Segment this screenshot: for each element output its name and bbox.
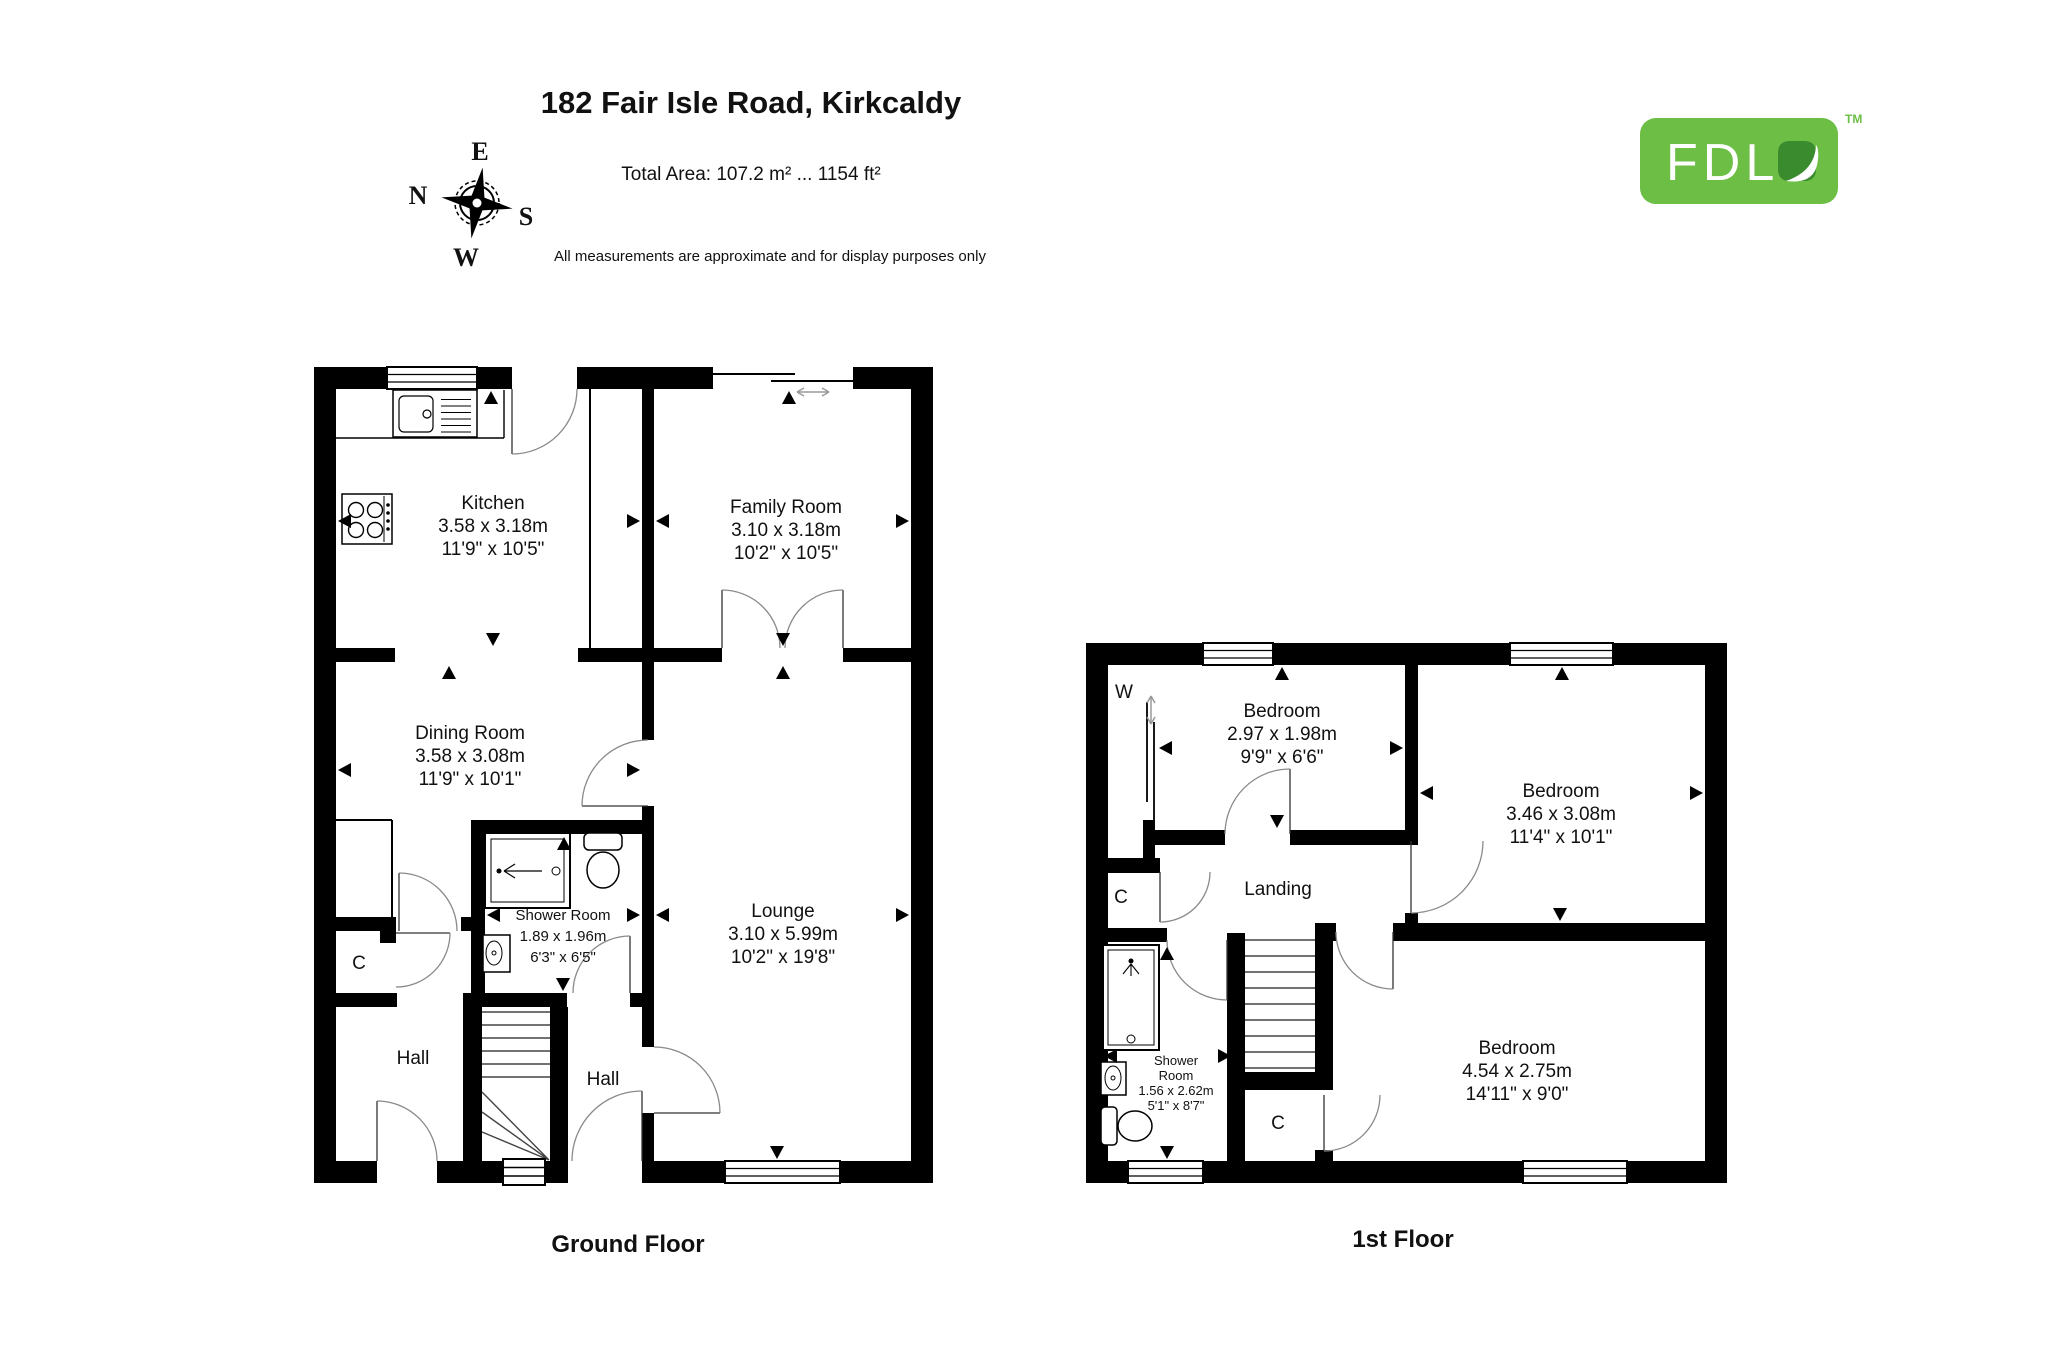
room-label-landing: Landing [1244, 878, 1312, 901]
windows [387, 367, 1627, 1183]
room-label-shower-room-first: Shower Room 1.56 x 2.62m 5'1" x 8'7" [1138, 1053, 1213, 1113]
compass-north-label: N [409, 181, 428, 211]
page-title: 182 Fair Isle Road, Kirkcaldy [541, 85, 961, 121]
kitchen-sink-icon [393, 390, 477, 437]
room-label-kitchen: Kitchen 3.58 x 3.18m 11'9" x 10'5" [438, 492, 548, 561]
fdl-logo: FDL [1640, 118, 1838, 204]
room-label-shower-room-ground: Shower Room 1.89 x 1.96m 6'3" x 6'5" [515, 905, 610, 968]
room-label-family-room: Family Room 3.10 x 3.18m 10'2" x 10'5" [730, 496, 842, 565]
total-area: Total Area: 107.2 m² ... 1154 ft² [621, 164, 880, 186]
compass-east-label: E [471, 137, 488, 167]
room-label-hall-left: Hall [397, 1047, 430, 1070]
fdl-logo-text: FDL [1666, 133, 1779, 193]
basin-first-icon [1101, 1062, 1126, 1095]
window-mullions [387, 375, 1627, 1177]
room-label-hall-right: Hall [587, 1068, 620, 1091]
stair-bottom-step [503, 1159, 545, 1185]
thin-partitions [336, 374, 1154, 917]
caption-first-floor: 1st Floor [1352, 1226, 1453, 1254]
disclaimer: All measurements are approximate and for… [554, 248, 986, 265]
caption-ground-floor: Ground Floor [551, 1231, 704, 1259]
compass-icon [436, 162, 518, 244]
room-label-wardrobe: W [1115, 681, 1133, 704]
toilet-ground-icon [584, 833, 622, 888]
basin-ground-icon [483, 935, 510, 972]
leaf-icon [1772, 137, 1820, 185]
room-label-bedroom-bottom: Bedroom 4.54 x 2.75m 14'11" x 9'0" [1462, 1037, 1572, 1106]
compass-west-label: W [453, 243, 479, 273]
room-label-bedroom-small: Bedroom 2.97 x 1.98m 9'9" x 6'6" [1227, 700, 1337, 769]
room-label-closet-first-left: C [1114, 886, 1128, 909]
room-label-lounge: Lounge 3.10 x 5.99m 10'2" x 19'8" [728, 900, 838, 969]
room-label-bedroom-right: Bedroom 3.46 x 3.08m 11'4" x 10'1" [1506, 780, 1616, 849]
room-label-dining-room: Dining Room 3.58 x 3.08m 11'9" x 10'1" [415, 722, 525, 791]
floorplan-drawing [0, 0, 2048, 1365]
room-label-closet-ground: C [352, 952, 366, 975]
shower-cubicle-ground-icon [485, 833, 570, 908]
shower-cubicle-first-icon [1103, 945, 1159, 1050]
room-label-closet-first-bottom: C [1271, 1112, 1285, 1135]
floorplan-page: 182 Fair Isle Road, Kirkcaldy Total Area… [0, 0, 2048, 1365]
compass-south-label: S [519, 202, 533, 232]
stair-treads [482, 940, 1315, 1160]
trademark-label: TM [1845, 112, 1862, 126]
